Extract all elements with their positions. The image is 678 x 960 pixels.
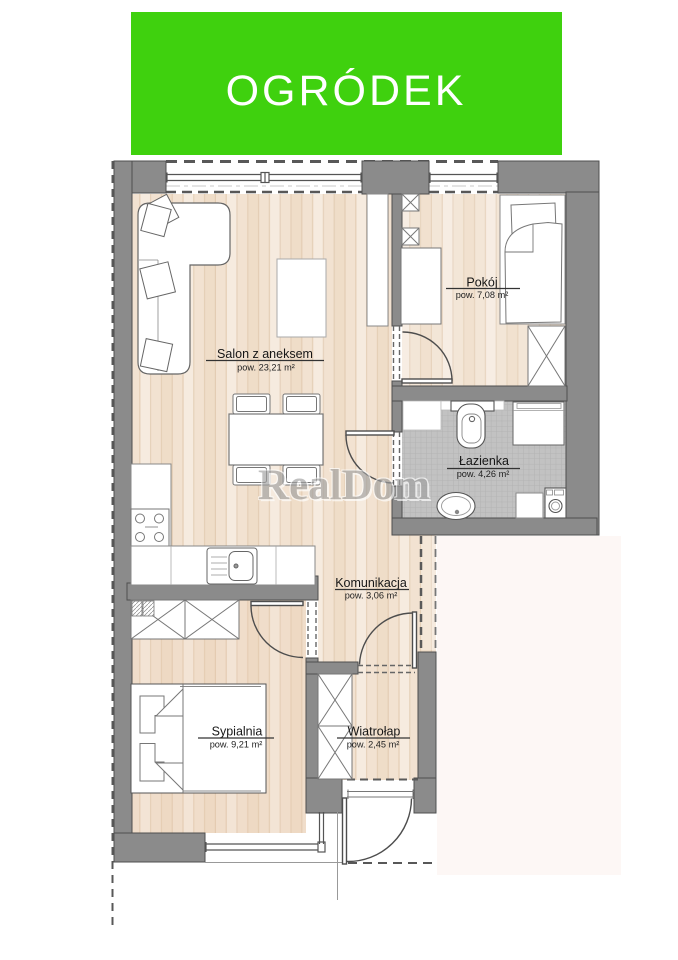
svg-text:pow. 2,45 m²: pow. 2,45 m²	[347, 740, 400, 750]
svg-text:OGRÓDEK: OGRÓDEK	[226, 67, 467, 115]
svg-text:Salon z aneksem: Salon z aneksem	[217, 347, 313, 361]
svg-text:Sypialnia: Sypialnia	[212, 725, 263, 739]
svg-text:pow. 3,06 m²: pow. 3,06 m²	[345, 591, 398, 601]
svg-text:pow. 9,21 m²: pow. 9,21 m²	[210, 740, 263, 750]
svg-text:Wiatrołap: Wiatrołap	[348, 725, 401, 739]
svg-text:pow. 7,08 m²: pow. 7,08 m²	[456, 290, 509, 300]
svg-text:pow. 23,21 m²: pow. 23,21 m²	[237, 363, 295, 373]
svg-text:Pokój: Pokój	[466, 276, 497, 290]
svg-text:RealDom: RealDom	[258, 462, 430, 509]
svg-text:Łazienka: Łazienka	[459, 454, 509, 468]
svg-text:pow. 4,26 m²: pow. 4,26 m²	[457, 469, 510, 479]
svg-text:Komunikacja: Komunikacja	[335, 576, 407, 590]
